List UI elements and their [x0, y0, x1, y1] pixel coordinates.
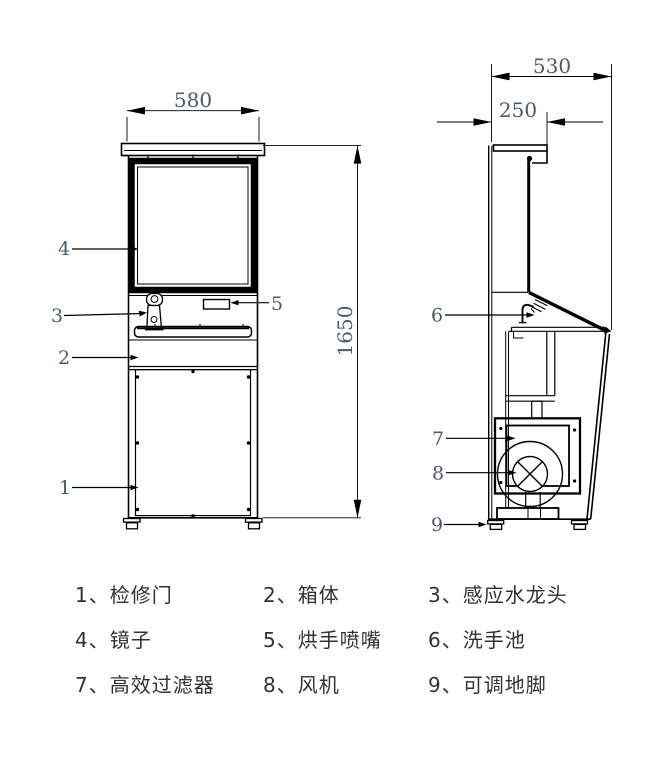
- callout-number-4: 4: [58, 238, 70, 260]
- dimension-overall-height: 1650: [263, 146, 361, 518]
- duct-riser: [532, 401, 542, 418]
- callout-9: 9: [431, 514, 487, 536]
- faucet-front-icon: [145, 294, 164, 330]
- callout-number-3: 3: [51, 305, 63, 327]
- dimension-top-depth: 250: [437, 98, 603, 147]
- side-canopy: [494, 145, 548, 151]
- legend-item-6: 6、洗手池: [428, 628, 526, 652]
- dimension-side-depth: 530: [492, 54, 612, 330]
- side-front-edge: [587, 333, 606, 519]
- legend-item-5: 5、烘手喷嘴: [263, 628, 382, 652]
- drawing-page: 580 1650 530 250: [0, 0, 664, 760]
- legend-item-3: 3、感应水龙头: [428, 583, 568, 607]
- dim-text-1650: 1650: [333, 306, 357, 357]
- technical-drawing: 580 1650 530 250: [0, 0, 664, 760]
- callout-6: 6: [431, 305, 535, 327]
- legend: 1、检修门 2、箱体 3、感应水龙头 4、镜子 5、烘手喷嘴 6、洗手池 7、高…: [75, 583, 568, 697]
- callout-number-2: 2: [58, 347, 70, 369]
- door-screws: [136, 370, 250, 518]
- canopy-hook: [527, 156, 532, 161]
- callout-number-9: 9: [431, 514, 443, 536]
- callout-number-7: 7: [432, 428, 444, 450]
- legend-item-2: 2、箱体: [263, 583, 340, 607]
- callout-number-6: 6: [431, 305, 443, 327]
- dimension-front-width: 580: [127, 88, 259, 142]
- front-top-lip: [122, 144, 265, 156]
- callout-3: 3: [51, 305, 147, 327]
- callout-number-1: 1: [59, 477, 71, 499]
- side-view: [488, 145, 612, 529]
- legend-item-9: 9、可调地脚: [428, 673, 547, 697]
- callout-4: 4: [58, 238, 139, 260]
- front-view: [122, 144, 265, 529]
- dim-text-580: 580: [174, 88, 212, 112]
- legend-item-8: 8、风机: [263, 673, 340, 697]
- callout-8: 8: [432, 463, 517, 485]
- dim-text-250: 250: [499, 98, 537, 122]
- access-door: [136, 370, 251, 516]
- mirror-glass: [138, 167, 249, 284]
- callout-number-8: 8: [432, 463, 444, 485]
- callout-2: 2: [58, 347, 139, 369]
- basin-front-lip: [604, 327, 611, 334]
- legend-item-7: 7、高效过滤器: [75, 673, 215, 697]
- callout-1: 1: [59, 477, 139, 499]
- dryer-nozzle: [204, 300, 230, 310]
- callout-number-5: 5: [271, 293, 283, 315]
- legend-item-4: 4、镜子: [75, 628, 152, 652]
- legend-item-1: 1、检修门: [75, 583, 173, 607]
- dim-text-530: 530: [533, 54, 571, 78]
- front-feet: [124, 519, 263, 529]
- side-feet: [488, 521, 588, 530]
- callout-7: 7: [432, 428, 516, 450]
